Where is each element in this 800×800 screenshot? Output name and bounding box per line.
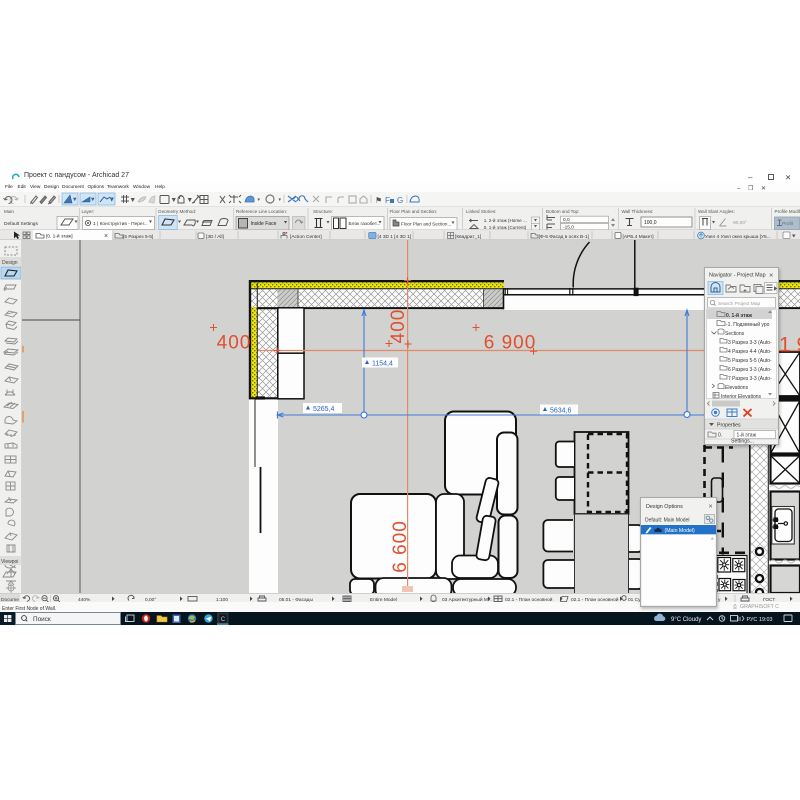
svg-text:РУС: РУС xyxy=(747,617,758,623)
svg-text:Floor Plan and Section:: Floor Plan and Section: xyxy=(390,209,438,214)
svg-text:Sections: Sections xyxy=(725,331,745,337)
svg-text:Wall Thickness:: Wall Thickness: xyxy=(622,209,654,214)
svg-text:5634,6: 5634,6 xyxy=(550,407,572,414)
svg-text:Linked Stories:: Linked Stories: xyxy=(466,209,496,214)
svg-text:[5 Разрез 5-5]: [5 Разрез 5-5] xyxy=(123,234,153,240)
svg-text:400: 400 xyxy=(388,309,409,344)
svg-text:Main: Main xyxy=(4,209,14,214)
svg-text:19:03: 19:03 xyxy=(759,617,773,623)
svg-text:[Квадрат_1]: [Квадрат_1] xyxy=(455,234,481,240)
svg-text:0.: 0. xyxy=(718,433,722,439)
svg-text:1-й этаж: 1-й этаж xyxy=(737,432,757,439)
svg-text:Elevations: Elevations xyxy=(725,385,749,391)
svg-text:[Action Center]: [Action Center] xyxy=(290,234,322,240)
svg-text:6 900: 6 900 xyxy=(484,333,537,354)
svg-text:0. 1-й этаж (Current): 0. 1-й этаж (Current) xyxy=(484,223,527,229)
svg-text:0. 1-й этаж: 0. 1-й этаж xyxy=(726,312,752,319)
svg-text:[0. 1-й этаж]: [0. 1-й этаж] xyxy=(46,233,73,240)
svg-text:4 Разрез 4-4 (Auto-: 4 Разрез 4-4 (Auto- xyxy=(728,349,772,355)
svg-text:G: G xyxy=(397,196,403,205)
svg-text:5265,4: 5265,4 xyxy=(313,406,335,413)
svg-text:6 600: 6 600 xyxy=(390,520,411,573)
svg-text:Поиск: Поиск xyxy=(33,616,51,623)
svg-text:Inside Face: Inside Face xyxy=(251,221,277,227)
svg-text:Default Settings: Default Settings xyxy=(4,221,38,227)
svg-text:×: × xyxy=(708,504,712,511)
svg-text:×: × xyxy=(769,271,773,280)
svg-text:Блок газобет...: Блок газобет... xyxy=(349,221,381,227)
svg-text:Navigator - Project Map: Navigator - Project Map xyxy=(709,273,766,279)
svg-text:1 9: 1 9 xyxy=(779,334,800,357)
svg-text:C: C xyxy=(221,617,226,623)
svg-text:9°C Cloudy: 9°C Cloudy xyxy=(671,617,701,623)
svg-text:100,0: 100,0 xyxy=(644,220,657,226)
svg-text:Structure:: Structure: xyxy=(313,209,333,214)
svg-text:Interior Elevations: Interior Elevations xyxy=(721,394,762,400)
svg-text:7 Разрез 3-3 (Auto-: 7 Разрез 3-3 (Auto- xyxy=(728,376,772,382)
svg-text:1154,4: 1154,4 xyxy=(372,360,393,367)
svg-text:Layer:: Layer: xyxy=(82,209,95,214)
svg-text:Reference Line Location:: Reference Line Location: xyxy=(236,209,287,214)
svg-text:Profile Modifier:: Profile Modifier: xyxy=(775,209,800,214)
svg-text:Wall Slant Angles:: Wall Slant Angles: xyxy=(698,209,735,214)
svg-text:Properties: Properties xyxy=(717,422,741,428)
svg-text:(Main Model): (Main Model) xyxy=(664,528,695,534)
svg-text:-15,0: -15,0 xyxy=(563,224,574,230)
svg-text:Search Project Map: Search Project Map xyxy=(718,301,760,307)
svg-text:[АРБ.4 Макет]: [АРБ.4 Макет] xyxy=(623,234,654,240)
svg-text:-1. Подземный уро: -1. Подземный уро xyxy=(726,321,770,328)
svg-text:Design Options: Design Options xyxy=(646,504,683,510)
svg-text:[Ф-5 Фасад в осях В-1]: [Ф-5 Фасад в осях В-1] xyxy=(539,234,589,240)
svg-text:3 Разрез 3-3 (Auto-: 3 Разрез 3-3 (Auto- xyxy=(728,340,772,346)
svg-text:400: 400 xyxy=(217,333,252,354)
svg-text:90,00°: 90,00° xyxy=(733,219,747,225)
svg-text:1 | Конструктив - Перег...: 1 | Конструктив - Перег... xyxy=(93,221,148,227)
svg-text:Profil: Profil xyxy=(782,221,793,227)
svg-text:×: × xyxy=(104,233,108,240)
svg-text:Design: Design xyxy=(2,260,18,266)
svg-text:Settings...: Settings... xyxy=(731,439,754,444)
svg-text:5 Разрез 5-5 (Auto-: 5 Разрез 5-5 (Auto- xyxy=(728,358,772,364)
svg-text:6 Разрез 3-3 (Auto-: 6 Разрез 3-3 (Auto- xyxy=(728,367,772,373)
svg-text:0,0: 0,0 xyxy=(563,217,570,223)
svg-text:Viewpoi: Viewpoi xyxy=(1,559,18,565)
svg-text:Floor Plan and Section...: Floor Plan and Section... xyxy=(401,221,451,226)
svg-text:F: F xyxy=(385,196,390,205)
svg-text:Узел 4 Узел окно крыша [У5...: Узел 4 Узел окно крыша [У5... xyxy=(705,234,771,240)
svg-text:[3D / All]: [3D / All] xyxy=(206,234,224,240)
svg-text:Geometry Method:: Geometry Method: xyxy=(158,209,196,214)
svg-text:[4 3D 1 [4 3D 1]: [4 3D 1 [4 3D 1] xyxy=(378,234,412,240)
svg-text:⚑: ⚑ xyxy=(375,196,382,205)
svg-text:Default: Main Model: Default: Main Model xyxy=(645,517,689,523)
svg-text:1. 2-й этаж (Home ...: 1. 2-й этаж (Home ... xyxy=(484,217,527,223)
svg-text:Bottom and Top:: Bottom and Top: xyxy=(546,209,579,214)
